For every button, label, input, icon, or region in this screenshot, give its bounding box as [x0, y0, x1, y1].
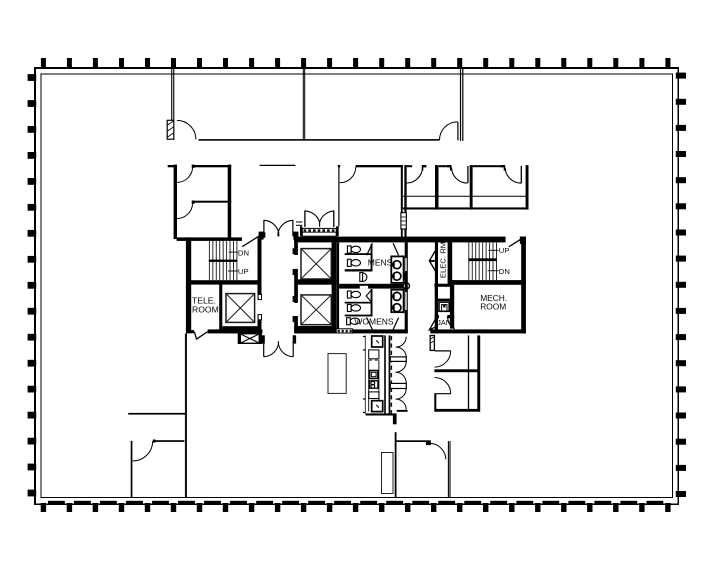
svg-text:ELEC. RM: ELEC. RM [439, 242, 448, 278]
svg-text:WOMENS: WOMENS [354, 317, 394, 327]
svg-text:DN: DN [499, 267, 510, 276]
svg-text:MENS: MENS [368, 258, 393, 268]
svg-text:ROOM: ROOM [192, 305, 219, 315]
svg-text:ROOM: ROOM [480, 302, 506, 312]
svg-text:DN: DN [238, 249, 249, 258]
svg-text:UP: UP [238, 267, 249, 276]
svg-text:UP: UP [499, 246, 510, 255]
